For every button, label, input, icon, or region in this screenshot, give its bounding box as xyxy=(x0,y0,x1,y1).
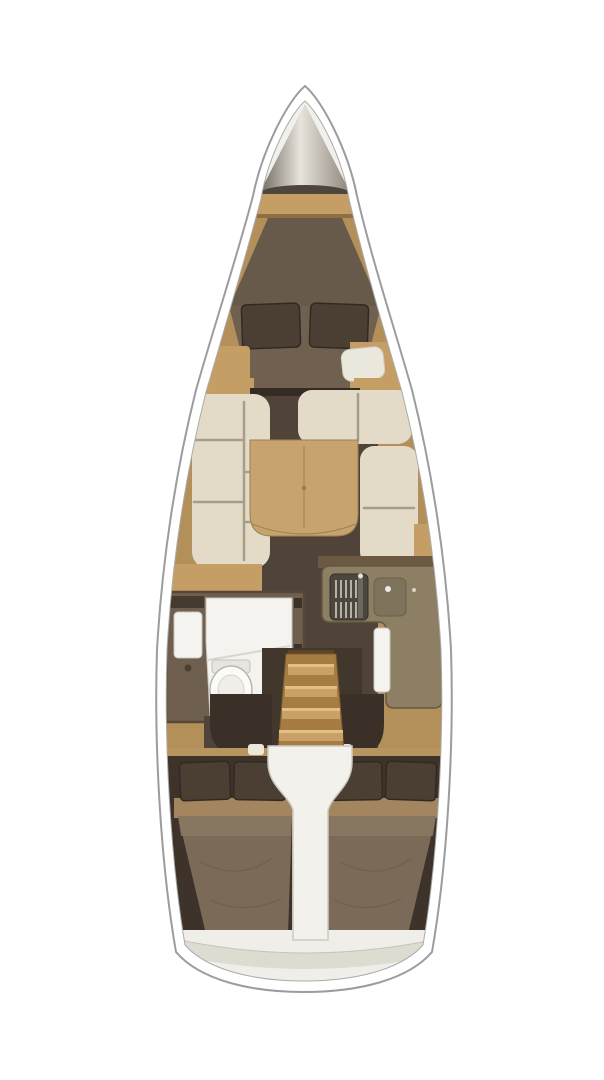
floor-plan-canvas xyxy=(0,0,604,1080)
port-cabinet xyxy=(166,564,262,594)
aft-cabin-port xyxy=(162,756,292,938)
forward-seat-cushion xyxy=(340,346,385,382)
pillow xyxy=(179,761,230,801)
counter-fitting xyxy=(412,588,416,592)
settee-cushions xyxy=(360,446,418,566)
head-sink xyxy=(174,612,202,658)
door-hinge xyxy=(294,598,302,608)
companionway-stairs xyxy=(278,650,344,750)
stove-rail xyxy=(358,578,363,618)
salon-table xyxy=(250,440,358,536)
sink-faucet xyxy=(185,665,192,672)
boat-floor-plan xyxy=(0,0,604,1080)
pillow xyxy=(385,761,436,801)
galley-sink xyxy=(374,578,406,616)
stove-knob xyxy=(358,574,363,579)
berth-sheet xyxy=(178,816,292,836)
head-shelf xyxy=(170,596,204,608)
settee-corner-cushion xyxy=(298,390,412,444)
counter-strip xyxy=(374,628,390,692)
pillow xyxy=(241,303,301,349)
berth-sheet xyxy=(323,816,436,836)
faucet xyxy=(385,586,391,592)
ledge-fitting xyxy=(248,744,264,755)
table-fitting xyxy=(302,486,306,490)
